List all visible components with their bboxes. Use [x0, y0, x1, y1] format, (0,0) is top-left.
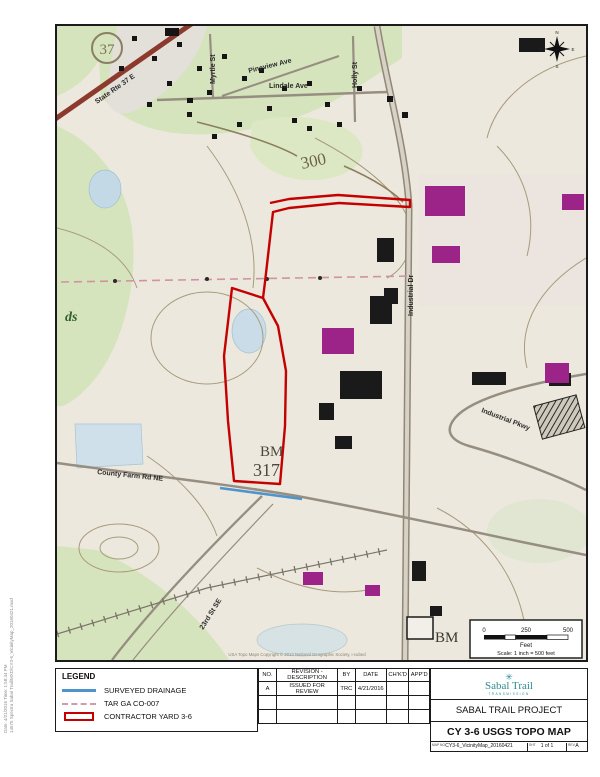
- col-appd: APP'D: [409, 669, 430, 682]
- rev-desc: ISSUED FOR REVIEW: [277, 682, 338, 696]
- scale-unit: Feet: [520, 643, 532, 649]
- map-number-label: MAP NO.: [432, 743, 446, 747]
- route-37-shield-number: 37: [100, 42, 116, 58]
- col-by: BY: [338, 669, 355, 682]
- sheet-title: CY 3-6 USGS TOPO MAP: [431, 722, 587, 742]
- compass-e: E: [571, 47, 574, 52]
- 23rd-st-label: 23rd St SE: [199, 597, 224, 631]
- rev-date: 4/21/2016: [355, 682, 386, 696]
- title-block: ✳ Sabal Trail TRANSMISSION SABAL TRAIL P…: [430, 668, 588, 752]
- scale-bar-segments: [484, 635, 568, 640]
- sheet-number-value: 1 of 1: [541, 743, 554, 751]
- legend: LEGEND SURVEYED DRAINAGE TAR GA CO-007 C…: [55, 668, 258, 732]
- revision-cell: REV. A: [567, 743, 587, 751]
- lindale-ave-label: Lindale Ave: [269, 83, 308, 90]
- title-block-bottom-row: MAP NO. CY3-6_VicinityMap_20160421 SHT 1…: [431, 742, 587, 751]
- scale-tick-250: 250: [521, 628, 532, 634]
- rev-chkd: [386, 682, 408, 696]
- legend-item-label: CONTRACTOR YARD 3-6: [104, 712, 192, 721]
- bm-label: BM: [260, 444, 283, 460]
- scale-bar: 0 250 500 Feet Scale: 1 inch = 500 feet: [470, 620, 582, 658]
- compass-s: S: [555, 64, 558, 69]
- revision-row-empty: [259, 696, 430, 710]
- rev-no: A: [259, 682, 277, 696]
- revision-table-header-row: NO. REVISION - DESCRIPTION BY DATE CH'K'…: [259, 669, 430, 682]
- bm-elevation: 317: [253, 460, 280, 480]
- revision-table: NO. REVISION - DESCRIPTION BY DATE CH'K'…: [258, 668, 430, 724]
- legend-item-contractor-yard: CONTRACTOR YARD 3-6: [62, 710, 251, 723]
- revision-row-a: A ISSUED FOR REVIEW TRC 4/21/2016: [259, 682, 430, 696]
- col-date: DATE: [355, 669, 386, 682]
- col-chkd: CH'K'D: [386, 669, 408, 682]
- county-farm-rd-label: County Farm Rd NE: [97, 469, 164, 483]
- legend-item-tar: TAR GA CO-007: [62, 697, 251, 710]
- surveyed-drainage-swatch: [62, 689, 96, 692]
- scale-tick-500: 500: [563, 628, 574, 634]
- revision-value: A: [575, 743, 578, 751]
- col-no: NO.: [259, 669, 277, 682]
- revision-label: REV.: [568, 743, 575, 747]
- company-logo: ✳ Sabal Trail TRANSMISSION: [431, 669, 587, 700]
- vegetation-areas: [57, 26, 586, 660]
- sheet-number-cell: SHT 1 of 1: [528, 743, 567, 751]
- legend-item-surveyed-drainage: SURVEYED DRAINAGE: [62, 684, 251, 697]
- legend-title: LEGEND: [62, 672, 251, 681]
- benchmark-317: BM 317: [253, 444, 283, 480]
- scale-text: Scale: 1 inch = 500 feet: [497, 651, 555, 657]
- tar-line-swatch: [62, 703, 96, 705]
- myrtle-st-label: Myrtle St: [210, 54, 217, 84]
- logo-name: Sabal Trail: [485, 681, 533, 692]
- revision-row-empty: [259, 710, 430, 724]
- margin-note-line2: 14575 Spectra Sabal Trail\MXD\CY3-6_Vici…: [9, 443, 15, 733]
- partial-place-label: ds: [65, 310, 78, 325]
- industrial-dr-label: Industrial Dr: [408, 274, 415, 316]
- topo-map-canvas: 37 State Rte 37 E Myrtle St Pineview Ave…: [55, 24, 588, 662]
- topo-map-svg: 37 State Rte 37 E Myrtle St Pineview Ave…: [57, 26, 586, 660]
- legend-item-label: TAR GA CO-007: [104, 699, 159, 708]
- col-desc: REVISION - DESCRIPTION: [277, 669, 338, 682]
- map-number-cell: MAP NO. CY3-6_VicinityMap_20160421: [431, 743, 528, 751]
- hatched-building: [534, 395, 585, 439]
- map-number-value: CY3-6_VicinityMap_20160421: [445, 743, 512, 751]
- holly-st-label: Holly St: [352, 61, 359, 88]
- sheet-number-label: SHT: [529, 743, 536, 747]
- bm-building: [407, 617, 433, 639]
- compass-n: N: [555, 30, 558, 35]
- plot-margin-note: Date: 4/21/2016 Time: 1:58:44 PM 14575 S…: [3, 443, 14, 733]
- logo-tagline: TRANSMISSION: [488, 692, 529, 696]
- rev-appd: [409, 682, 430, 696]
- project-name: SABAL TRAIL PROJECT: [431, 700, 587, 722]
- bm2-label: BM: [435, 630, 458, 646]
- map-credit: USA Topo Maps Copyright © 2013 National …: [228, 652, 366, 657]
- rev-by: TRC: [338, 682, 355, 696]
- legend-item-label: SURVEYED DRAINAGE: [104, 686, 186, 695]
- industrial-pkwy-label: Industrial Pkwy: [480, 407, 531, 432]
- contractor-yard-swatch: [62, 712, 96, 721]
